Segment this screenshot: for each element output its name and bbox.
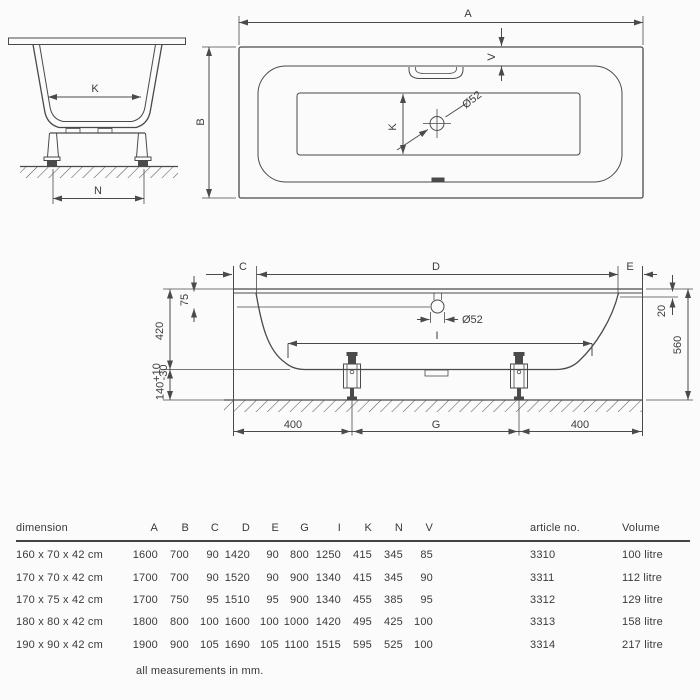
dim-label-a: A <box>464 8 472 20</box>
v-value: 90 <box>403 572 433 584</box>
col-header-c: C <box>189 522 219 534</box>
dim-label-140-tol-minus: -30 <box>158 365 170 381</box>
tub-rim-side <box>9 38 186 45</box>
col-header-k: K <box>341 522 372 534</box>
dimension-value: 170 x 70 x 42 cm <box>16 572 132 584</box>
g-value: 900 <box>279 572 309 584</box>
article-value: 3310 <box>433 549 622 561</box>
table-row: 170 x 75 x 42 cm 1700 750 95 1510 95 900… <box>16 589 690 611</box>
dim-k-plan: K <box>387 94 403 154</box>
k-value: 495 <box>341 616 372 628</box>
dim-label-v: V <box>486 53 498 61</box>
dim-label-400-right: 400 <box>571 419 589 431</box>
k-value: 455 <box>341 594 372 606</box>
v-value: 100 <box>403 616 433 628</box>
col-header-dimension: dimension <box>16 522 132 534</box>
col-header-n: N <box>372 522 403 534</box>
plan-view: Ø52 A B V K <box>195 8 643 198</box>
a-value: 1800 <box>132 616 158 628</box>
col-header-v: V <box>403 522 433 534</box>
d-value: 1510 <box>219 594 250 606</box>
dimension-value: 160 x 70 x 42 cm <box>16 549 132 561</box>
table-row: 170 x 70 x 42 cm 1700 700 90 1520 90 900… <box>16 566 690 588</box>
b-value: 750 <box>158 594 189 606</box>
dim-label-e: E <box>626 261 633 273</box>
overflow-slot <box>409 67 463 79</box>
a-value: 1700 <box>132 594 158 606</box>
technical-drawing: K N Ø52 <box>0 0 700 505</box>
side-view: K N <box>9 38 186 204</box>
i-value: 1515 <box>309 639 341 651</box>
v-value: 100 <box>403 639 433 651</box>
table-header-row: dimension A B C D E G I K N V article no… <box>16 514 690 542</box>
g-value: 1100 <box>279 639 309 651</box>
volume-value: 129 litre <box>622 594 690 606</box>
dim-label-b: B <box>195 118 207 125</box>
dim-560: 560 <box>646 289 693 400</box>
article-value: 3313 <box>433 616 622 628</box>
b-value: 700 <box>158 549 189 561</box>
tub-floor-plan <box>297 93 580 155</box>
col-header-volume: Volume <box>622 522 690 534</box>
e-value: 90 <box>250 549 279 561</box>
i-value: 1340 <box>309 572 341 584</box>
dim-a: A <box>239 8 643 45</box>
dim-label-g: G <box>432 419 441 431</box>
dim-label-c: C <box>239 261 247 273</box>
left-leg <box>44 133 60 166</box>
ground-hatch <box>20 167 178 178</box>
volume-value: 158 litre <box>622 616 690 628</box>
col-header-e: E <box>250 522 279 534</box>
table-row: 180 x 80 x 42 cm 1800 800 100 1600 100 1… <box>16 611 690 633</box>
dim-e: E <box>626 261 657 275</box>
dim-v: V <box>486 28 502 81</box>
volume-value: 100 litre <box>622 549 690 561</box>
drain-section: Ø52 <box>417 293 483 326</box>
dim-420: 420 <box>154 290 170 370</box>
dim-20: 20 <box>656 275 673 317</box>
dim-k-side: K <box>48 83 141 97</box>
d-value: 1520 <box>219 572 250 584</box>
g-value: 1000 <box>279 616 309 628</box>
dim-label-140: 140 <box>155 382 167 400</box>
dim-label-560: 560 <box>672 336 684 354</box>
dim-label-400-left: 400 <box>284 419 302 431</box>
col-header-d: D <box>219 522 250 534</box>
a-value: 1900 <box>132 639 158 651</box>
v-value: 85 <box>403 549 433 561</box>
dimension-value: 190 x 90 x 42 cm <box>16 639 132 651</box>
dimension-value: 180 x 80 x 42 cm <box>16 616 132 628</box>
drain-mark <box>432 178 445 183</box>
n-value: 385 <box>372 594 403 606</box>
a-value: 1600 <box>132 549 158 561</box>
i-value: 1340 <box>309 594 341 606</box>
tub-outline-plan <box>239 47 643 198</box>
d-value: 1690 <box>219 639 250 651</box>
e-value: 100 <box>250 616 279 628</box>
n-value: 525 <box>372 639 403 651</box>
b-value: 800 <box>158 616 189 628</box>
i-value: 1420 <box>309 616 341 628</box>
drain-outlet <box>425 370 448 376</box>
v-value: 95 <box>403 594 433 606</box>
support-rail <box>66 129 80 134</box>
col-header-a: A <box>132 522 158 534</box>
volume-value: 112 litre <box>622 572 690 584</box>
ground-hatch-section <box>224 401 643 413</box>
g-value: 900 <box>279 594 309 606</box>
n-value: 345 <box>372 572 403 584</box>
dim-label-75: 75 <box>179 294 191 306</box>
right-leg <box>135 133 151 166</box>
d-value: 1600 <box>219 616 250 628</box>
col-header-b: B <box>158 522 189 534</box>
c-value: 90 <box>189 549 219 561</box>
c-value: 100 <box>189 616 219 628</box>
section-view: C D E 75 420 140 +1 <box>151 261 693 436</box>
table-row: 160 x 70 x 42 cm 1600 700 90 1420 90 800… <box>16 544 690 566</box>
volume-value: 217 litre <box>622 639 690 651</box>
leg-pad <box>48 161 57 166</box>
col-header-i: I <box>309 522 341 534</box>
b-value: 900 <box>158 639 189 651</box>
measurements-note: all measurements in mm. <box>16 665 690 677</box>
dim-label-n: N <box>94 185 102 197</box>
dim-75: 75 <box>179 276 194 322</box>
e-value: 90 <box>250 572 279 584</box>
tub-inner-rim-plan <box>258 66 622 182</box>
k-value: 415 <box>341 549 372 561</box>
spec-table: dimension A B C D E G I K N V article no… <box>16 514 690 677</box>
dim-i: I <box>288 330 592 358</box>
c-value: 95 <box>189 594 219 606</box>
e-value: 95 <box>250 594 279 606</box>
a-value: 1700 <box>132 572 158 584</box>
dim-label-i: I <box>435 330 438 342</box>
foot-left <box>344 352 361 400</box>
e-value: 105 <box>250 639 279 651</box>
drain-plan: Ø52 <box>397 89 484 150</box>
g-value: 800 <box>279 549 309 561</box>
dim-b: B <box>195 47 236 198</box>
k-value: 595 <box>341 639 372 651</box>
leg-pad <box>139 161 148 166</box>
i-value: 1250 <box>309 549 341 561</box>
c-value: 90 <box>189 572 219 584</box>
dim-label-20: 20 <box>656 305 668 317</box>
col-header-article: article no. <box>433 522 622 534</box>
dim-label-k-plan: K <box>387 123 399 131</box>
article-value: 3314 <box>433 639 622 651</box>
n-value: 345 <box>372 549 403 561</box>
dim-140: 140 +10 -30 <box>151 363 170 400</box>
article-value: 3311 <box>433 572 622 584</box>
support-rail <box>98 129 112 134</box>
c-value: 105 <box>189 639 219 651</box>
dim-label-drain-plan: Ø52 <box>460 89 484 111</box>
k-value: 415 <box>341 572 372 584</box>
article-value: 3312 <box>433 594 622 606</box>
col-header-g: G <box>279 522 309 534</box>
dim-label-k-side: K <box>91 83 99 95</box>
dim-label-drain-section: Ø52 <box>462 314 483 326</box>
dim-label-420: 420 <box>154 322 166 340</box>
dim-label-d: D <box>432 261 440 273</box>
table-row: 190 x 90 x 42 cm 1900 900 105 1690 105 1… <box>16 634 690 656</box>
d-value: 1420 <box>219 549 250 561</box>
foot-right <box>511 352 528 400</box>
b-value: 700 <box>158 572 189 584</box>
dimension-value: 170 x 75 x 42 cm <box>16 594 132 606</box>
n-value: 425 <box>372 616 403 628</box>
